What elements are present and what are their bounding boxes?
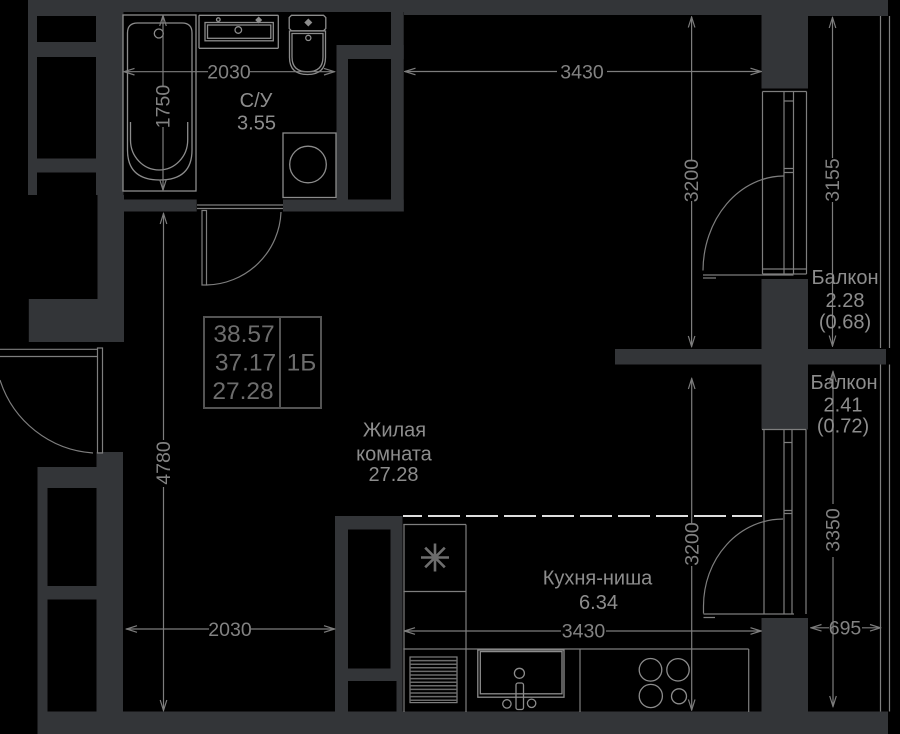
svg-text:3200: 3200 [681, 159, 703, 203]
svg-text:3.55: 3.55 [237, 113, 276, 135]
svg-text:1750: 1750 [153, 85, 175, 129]
svg-text:38.57: 38.57 [213, 321, 274, 348]
svg-text:1Б: 1Б [287, 350, 317, 377]
svg-text:3200: 3200 [681, 522, 703, 566]
svg-text:2.28: 2.28 [826, 290, 865, 312]
svg-text:Балкон: Балкон [811, 267, 878, 289]
svg-text:С/У: С/У [240, 90, 273, 112]
svg-text:695: 695 [829, 618, 862, 640]
svg-text:37.17: 37.17 [215, 350, 276, 377]
svg-text:27.28: 27.28 [368, 464, 418, 486]
svg-text:3430: 3430 [562, 621, 606, 643]
svg-text:27.28: 27.28 [212, 378, 273, 405]
svg-text:6.34: 6.34 [579, 592, 618, 614]
svg-text:3350: 3350 [823, 508, 845, 552]
svg-text:2030: 2030 [208, 619, 252, 641]
svg-text:2.41: 2.41 [824, 395, 863, 417]
svg-text:(0.72): (0.72) [817, 416, 869, 438]
svg-text:Кухня-ниша: Кухня-ниша [543, 568, 653, 590]
svg-text:4780: 4780 [153, 441, 175, 485]
svg-text:комната: комната [356, 444, 433, 466]
svg-text:Жилая: Жилая [363, 420, 426, 442]
svg-text:Балкон: Балкон [810, 372, 877, 394]
svg-text:2030: 2030 [207, 62, 251, 84]
svg-text:3430: 3430 [560, 61, 604, 83]
svg-text:(0.68): (0.68) [819, 312, 871, 334]
svg-text:3155: 3155 [822, 158, 844, 202]
